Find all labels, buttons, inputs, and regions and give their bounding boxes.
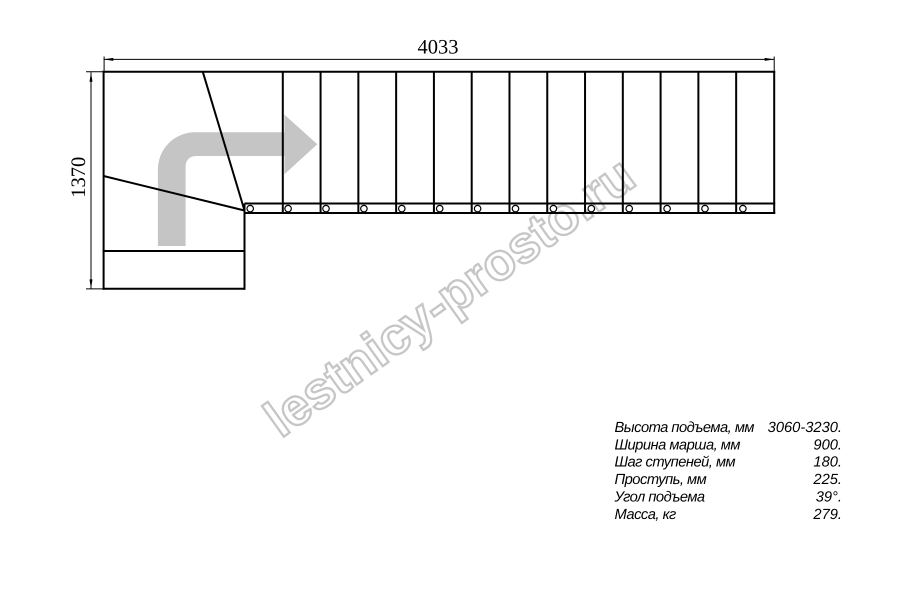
svg-text:39°.: 39°. <box>816 490 842 506</box>
svg-text:1370: 1370 <box>68 157 90 198</box>
svg-text:Высота подъема, мм: Высота подъема, мм <box>615 420 755 436</box>
svg-text:225.: 225. <box>812 472 842 488</box>
svg-text:Шаг ступеней, мм: Шаг ступеней, мм <box>615 455 736 471</box>
svg-text:3060-3230.: 3060-3230. <box>768 420 842 436</box>
svg-text:Угол подъема: Угол подъема <box>614 490 705 506</box>
svg-text:Масса, кг: Масса, кг <box>615 507 677 523</box>
svg-text:Ширина марша, мм: Ширина марша, мм <box>615 437 741 453</box>
svg-text:180.: 180. <box>813 455 842 471</box>
svg-text:Проступь, мм: Проступь, мм <box>615 472 707 488</box>
svg-text:4033: 4033 <box>418 36 459 58</box>
svg-text:279.: 279. <box>812 507 842 523</box>
svg-text:900.: 900. <box>813 437 842 453</box>
